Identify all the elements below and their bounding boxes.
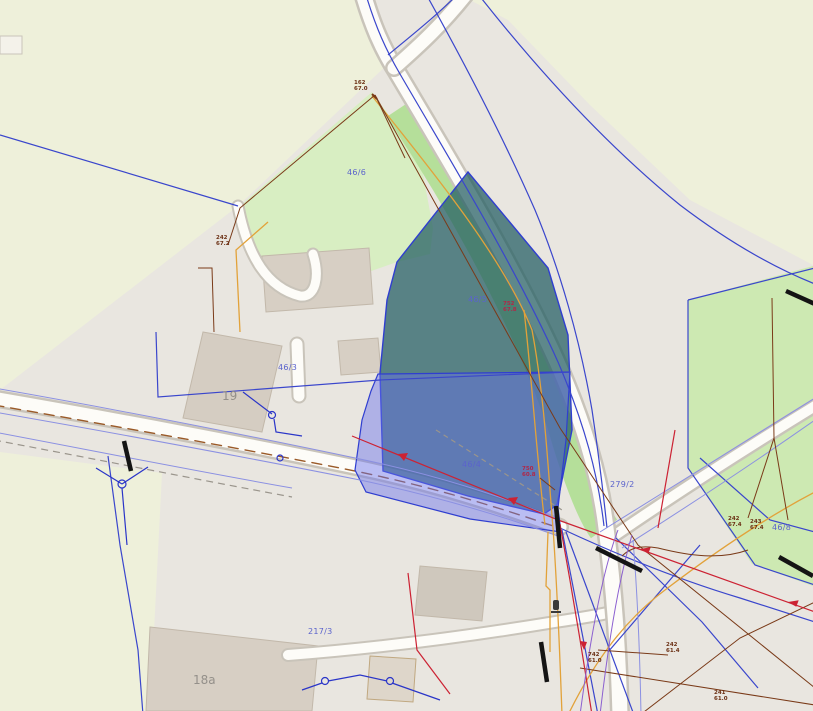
map-viewport[interactable]: 46/6 46/5 46/3 46/4 279/2 46/8 217/3 19 … (0, 0, 813, 711)
utility-label-line2: 61.0 (588, 658, 602, 664)
field-hut (0, 36, 22, 54)
utility-label-line2: 60.8 (522, 472, 536, 478)
parcel-label-46-6: 46/6 (347, 168, 366, 177)
utility-label-line2: 67.8 (503, 307, 517, 313)
parcel-label-46-4: 46/4 (462, 460, 481, 469)
utility-label-line2: 67.4 (750, 525, 764, 531)
parcel-label-46-3: 46/3 (278, 363, 297, 372)
utility-label-line2: 67.0 (354, 86, 368, 92)
house-number-19: 19 (222, 389, 237, 403)
building-small-south (367, 656, 416, 702)
driveway (297, 344, 299, 396)
utility-label-line2: 67.4 (728, 522, 742, 528)
house-number-18a: 18a (193, 673, 216, 687)
field-bottom-left (0, 452, 162, 711)
utility-label-line2: 61.4 (666, 648, 680, 654)
parcel-label-46-5: 46/5 (468, 295, 487, 304)
building-shed (338, 338, 381, 375)
parcel-label-279-2: 279/2 (610, 480, 635, 489)
street-lamp-icon (553, 600, 559, 610)
utility-label-line2: 61.0 (714, 696, 728, 702)
utility-label-line2: 67.2 (216, 241, 230, 247)
parcel-label-46-8: 46/8 (772, 523, 791, 532)
building-south (415, 566, 487, 621)
parcel-label-217-3: 217/3 (308, 627, 333, 636)
map-canvas[interactable]: 46/6 46/5 46/3 46/4 279/2 46/8 217/3 19 … (0, 0, 813, 711)
